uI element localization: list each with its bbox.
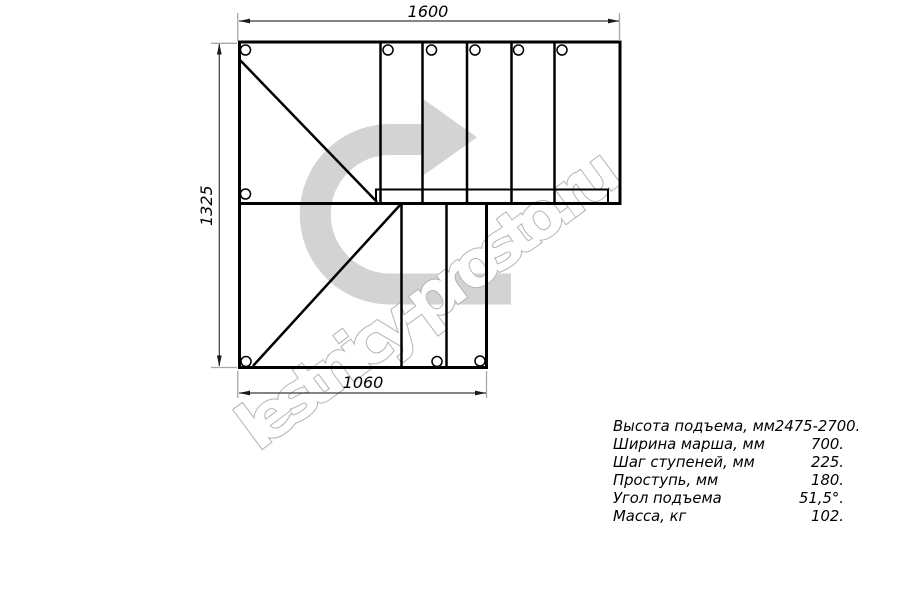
spec-row-step-pitch: Шаг ступеней, мм 225. (613, 454, 844, 472)
spec-label: Угол подъема (613, 490, 722, 508)
spec-value: 2475-2700. (775, 418, 860, 436)
spec-value: 180. (811, 472, 844, 490)
spec-table: Высота подъема, мм 2475-2700. Ширина мар… (613, 418, 844, 526)
bolt-hole (557, 45, 567, 55)
dim-label-top: 1600 (408, 2, 449, 21)
spec-row-flight-width: Ширина марша, мм 700. (613, 436, 844, 454)
spec-label: Шаг ступеней, мм (613, 454, 755, 472)
bolt-hole (241, 357, 251, 367)
bolt-hole (427, 45, 437, 55)
watermark-text: lestnicy-prosto.ru (224, 137, 631, 465)
bolt-hole (383, 45, 393, 55)
spec-row-tread: Проступь, мм 180. (613, 472, 844, 490)
bolt-hole (475, 356, 485, 366)
spec-label: Высота подъема, мм (613, 418, 775, 436)
spec-label: Ширина марша, мм (613, 436, 765, 454)
spec-row-climb-angle: Угол подъема 51,5°. (613, 490, 844, 508)
staircase-drawing-page: lestnicy-prosto.ru (0, 0, 900, 600)
spec-value: 700. (811, 436, 844, 454)
spec-value: 51,5°. (799, 490, 844, 508)
bolt-hole (241, 189, 251, 199)
bolt-hole (470, 45, 480, 55)
dim-label-left: 1325 (197, 185, 216, 226)
spec-value: 102. (811, 508, 844, 526)
bolt-hole (514, 45, 524, 55)
spec-row-mass: Масса, кг 102. (613, 508, 844, 526)
dim-label-bottom: 1060 (343, 373, 384, 392)
spec-row-lift-height: Высота подъема, мм 2475-2700. (613, 418, 844, 436)
bolt-hole (432, 357, 442, 367)
spec-label: Масса, кг (613, 508, 686, 526)
turn-arrow-head (423, 99, 478, 177)
bolt-hole (241, 45, 251, 55)
spec-value: 225. (811, 454, 844, 472)
spec-label: Проступь, мм (613, 472, 718, 490)
